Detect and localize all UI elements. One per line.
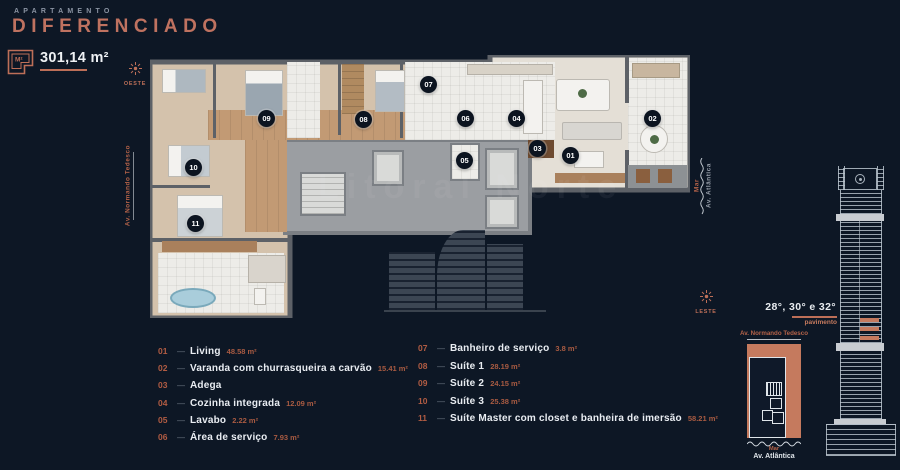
legend-item-separator: — [172,381,190,390]
legend-item-label: Lavabo [190,415,226,426]
legend-item-area: 15.41 m² [378,364,408,373]
wall [338,62,341,135]
legend-item-area: 28.19 m² [490,362,520,371]
wall-varanda [625,55,629,103]
tower-lower-shaft [840,351,882,419]
legend-item-separator: — [432,379,450,388]
street-label-left: Av. Normando Tedesco [125,144,132,228]
tower-logo-icon [855,174,865,184]
tower-band [836,214,884,221]
legend-item-number: 11 [418,413,432,423]
legend-item-number: 08 [418,361,432,371]
area-underline [40,69,87,71]
city-ground-line [384,310,546,312]
elevator [372,150,404,186]
stairs [300,172,346,216]
master-vanity [162,241,257,252]
tower-highlight-floor [860,318,879,322]
master-closet [248,255,286,283]
legend-item-area: 25.38 m² [490,397,520,406]
room-marker-02: 02 [644,110,661,127]
page-title: DIFERENCIADO [12,16,223,38]
apartment-floorplan-page: APARTAMENTO DIFERENCIADO M² 301,14 m² OE… [0,0,900,470]
tower-elevation [824,166,896,456]
legend-item-area: 2.22 m² [232,416,258,425]
legend-item-label: Suíte 1 [450,361,484,372]
tower-band [836,343,884,351]
room-marker-06: 06 [457,110,474,127]
city-building [389,252,435,310]
legend-item-number: 03 [158,380,172,390]
legend-item-label: Living [190,346,221,357]
legend-right-column: 07 — Banheiro de serviço 3.8 m² 08 — Suí… [418,343,718,431]
legend-item: 06 — Área de serviço 7.93 m² [158,432,408,449]
legend-left-column: 01 — Living 48.58 m² 02 — Varanda com ch… [158,346,408,449]
legend-item-label: Adega [190,380,222,391]
total-area-value: 301,14 m² [40,50,109,66]
street-label-right: Av. Atlântica [706,156,713,216]
legend-item-number: 05 [158,415,172,425]
keyplan-avenue-bottom-label: Av. Atlântica [734,453,814,460]
keyplan-sea-label: Mar [734,446,814,452]
compass-east: LESTE [693,290,719,315]
tower-crown [843,168,877,190]
suite1-bed [375,70,405,112]
elevator [485,195,519,229]
keyplan-stairs [766,382,782,396]
plant-icon [578,89,587,98]
city-building [487,244,523,310]
legend-item: 11 — Suíte Master com closet e banheira … [418,413,718,431]
m2-icon-label: M² [15,57,23,64]
room-marker-04: 04 [508,110,525,127]
tower-upper-shaft [840,190,882,214]
legend-item-area: 7.93 m² [274,433,300,442]
legend-item-separator: — [432,397,450,406]
suite2-bed [245,70,283,116]
room-marker-10: 10 [185,159,202,176]
legend-item: 03 — Adega [158,380,408,397]
legend-item-separator: — [432,344,450,353]
legend-item-label: Suíte 3 [450,396,484,407]
room-marker-03: 03 [529,140,546,157]
tower-crown-post [877,166,884,190]
legend-item-number: 06 [158,432,172,442]
room-marker-01: 01 [562,147,579,164]
sun-east-icon [700,290,713,303]
header-eyebrow: APARTAMENTO [14,8,113,15]
tower-center-line [859,221,860,343]
keyplan-elevator [770,398,782,409]
keyplan-tower-footprint [749,357,786,438]
legend-item-label: Suíte 2 [450,378,484,389]
sun-west-icon [129,62,142,75]
floors-label: 28°, 30° e 32° [730,301,836,313]
legend-item: 10 — Suíte 3 25.38 m² [418,396,718,414]
legend-item-separator: — [432,362,450,371]
legend-item-label: Área de serviço [190,432,268,443]
legend-item-separator: — [172,364,190,373]
legend-item-separator: — [172,416,190,425]
legend-item-area: 3.8 m² [555,344,577,353]
compass-east-label: LESTE [693,309,719,315]
legend-item: 09 — Suíte 2 24.15 m² [418,378,718,396]
legend-item-separator: — [432,414,450,423]
suite1-wardrobe [342,64,364,114]
legend-item-number: 09 [418,378,432,388]
kitchen-island [523,80,543,134]
toilet [254,288,266,305]
tower-highlight-floor [860,336,879,340]
legend-item-area: 48.58 m² [227,347,257,356]
legend-item: 05 — Lavabo 2.22 m² [158,415,408,432]
legend-item-number: 07 [418,343,432,353]
legend-item-area: 12.09 m² [286,399,316,408]
elevator [485,148,519,190]
tower-podium [826,424,896,456]
legend-item: 07 — Banheiro de serviço 3.8 m² [418,343,718,361]
keyplan-elevator [772,412,784,424]
legend-item: 01 — Living 48.58 m² [158,346,408,363]
compass-west: OESTE [122,62,148,87]
legend-item-label: Banheiro de serviço [450,343,549,354]
legend-item: 02 — Varanda com churrasqueira a carvão … [158,363,408,380]
legend-item-separator: — [172,399,190,408]
tv-sideboard [555,173,625,183]
city-building [437,230,485,310]
varanda-sofa [632,63,680,78]
room-marker-07: 07 [420,76,437,93]
wall [150,185,210,188]
tower-mid-shaft [840,221,882,343]
room-marker-08: 08 [355,111,372,128]
legend-item-number: 01 [158,346,172,356]
foyer-floor [245,140,287,232]
grill-icon [658,169,672,183]
legend-item-label: Varanda com churrasqueira a carvão [190,363,372,374]
legend-item-number: 10 [418,396,432,406]
bed-corner-suite [162,69,206,93]
legend-item-number: 02 [158,363,172,373]
room-marker-09: 09 [258,110,275,127]
suite2-bathroom [287,62,320,138]
sea-wave-icon [699,158,705,216]
sofa [562,122,622,140]
kitchen-counter [467,64,553,75]
grill-icon [636,169,650,183]
service-area [405,62,465,140]
legend-item-label: Suíte Master com closet e banheira de im… [450,413,682,424]
street-label-left-rule [133,152,134,220]
legend-item-number: 04 [158,398,172,408]
wall [213,62,216,138]
room-marker-11: 11 [187,215,204,232]
room-marker-05: 05 [456,152,473,169]
tower-highlight-floor [860,327,879,331]
m2-floorplan-icon: M² [6,48,36,76]
legend-item-area: 58.21 m² [688,414,718,423]
bathtub [170,288,216,308]
keyplan-underline [747,339,801,340]
legend-item-separator: — [172,347,190,356]
legend-item: 04 — Cozinha integrada 12.09 m² [158,398,408,415]
plant-icon [650,135,659,144]
legend-item-label: Cozinha integrada [190,398,280,409]
legend-item: 08 — Suíte 1 28.19 m² [418,361,718,379]
legend-item-separator: — [172,433,190,442]
compass-west-label: OESTE [122,81,148,87]
legend-item-area: 24.15 m² [490,379,520,388]
keyplan-avenue-label: Av. Normando Tedesco [734,330,814,337]
